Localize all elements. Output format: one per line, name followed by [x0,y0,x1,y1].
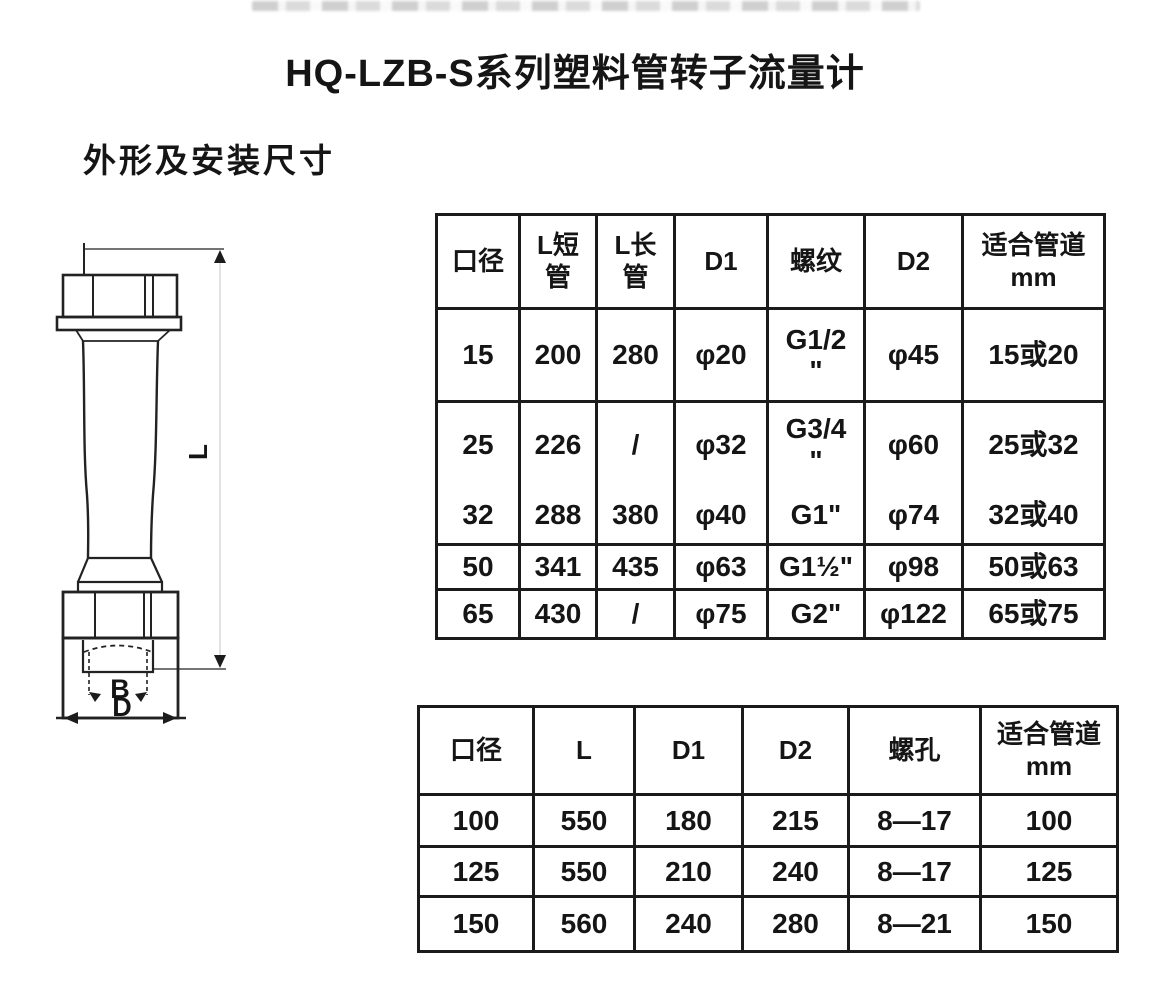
table1-cell: 25或32 [963,402,1105,487]
table1-cell: 226 [520,402,597,487]
table2-cell: 8—17 [849,795,981,847]
table-row: 65 430 / φ75 G2" φ122 65或75 [437,590,1105,639]
table1-cell: G1" [768,487,865,545]
table1-cell: 15或20 [963,309,1105,402]
table-row: 32 288 380 φ40 G1" φ74 32或40 [437,487,1105,545]
table1-header-cell: 适合管道 mm [963,215,1105,309]
table2-cell: 280 [743,897,849,952]
hidden-thread-arc [84,646,152,653]
top-flange [57,317,181,330]
table2-header-cell: D2 [743,707,849,795]
table1-cell: 25 [437,402,520,487]
table2-header-cell: L [534,707,635,795]
top-hex-nut [63,275,177,317]
table-row: 50 341 435 φ63 G1½" φ98 50或63 [437,545,1105,590]
table1-cell: 435 [597,545,675,590]
table1-header-cell: D2 [865,215,963,309]
flowmeter-outline-drawing: L B D [40,235,240,735]
table2-cell: 240 [635,897,743,952]
inner-socket [83,640,153,672]
table1-cell: 50或63 [963,545,1105,590]
table1-cell: 32 [437,487,520,545]
d-dim-arrow-right [163,712,177,724]
table1-cell: G2" [768,590,865,639]
table2-header-cell: D1 [635,707,743,795]
table2-cell: 215 [743,795,849,847]
dim-label-d: D [112,692,132,722]
table2-cell: 100 [419,795,534,847]
table1-cell: 288 [520,487,597,545]
table-row: 口径 L D1 D2 螺孔 适合管道 mm [419,707,1118,795]
bottom-hex-nut [63,592,178,638]
tube-left-edge [83,341,88,558]
collar [78,582,162,592]
table1-cell: 200 [520,309,597,402]
table1-header-cell: L长 管 [597,215,675,309]
table-row: 25 226 / φ32 G3/4 " φ60 25或32 [437,402,1105,487]
table2-cell: 125 [419,847,534,897]
table1-cell: φ63 [675,545,768,590]
table1-cell: φ45 [865,309,963,402]
table1-cell: 32或40 [963,487,1105,545]
table1-cell: / [597,402,675,487]
table1-cell: φ98 [865,545,963,590]
table1-cell: φ60 [865,402,963,487]
table2-cell: 8—17 [849,847,981,897]
table1-header-cell: L短 管 [520,215,597,309]
table2-cell: 560 [534,897,635,952]
table2-cell: 180 [635,795,743,847]
dim-label-l: L [183,444,213,460]
table2-header-cell: 适合管道 mm [981,707,1118,795]
table1-cell: G1/2 " [768,309,865,402]
table1-cell: φ122 [865,590,963,639]
table2-cell: 125 [981,847,1118,897]
table2-header-cell: 口径 [419,707,534,795]
table1-cell: 65或75 [963,590,1105,639]
table2-cell: 550 [534,795,635,847]
section-heading: 外形及安装尺寸 [83,134,335,182]
table1-cell: 430 [520,590,597,639]
table-row: 口径 L短 管 L长 管 D1 螺纹 D2 适合管道 mm [437,215,1105,309]
cropped-text-strip [252,1,920,11]
table2-cell: 240 [743,847,849,897]
page: HQ-LZB-S系列塑料管转子流量计 外形及安装尺寸 [0,0,1150,1008]
table1-cell: 380 [597,487,675,545]
dimensions-table-flanged: 口径 L D1 D2 螺孔 适合管道 mm 100 550 180 215 8—… [417,705,1119,953]
table2-cell: 550 [534,847,635,897]
table1-cell: φ32 [675,402,768,487]
table2-cell: 150 [419,897,534,952]
page-title: HQ-LZB-S系列塑料管转子流量计 [0,42,1150,97]
cone-transition [78,558,162,582]
table1-cell: G1½" [768,545,865,590]
table-row: 15 200 280 φ20 G1/2 " φ45 15或20 [437,309,1105,402]
table1-cell: φ40 [675,487,768,545]
table2-cell: 150 [981,897,1118,952]
dimensions-table-threaded: 口径 L短 管 L长 管 D1 螺纹 D2 适合管道 mm 15 200 280… [435,213,1106,640]
b-dim-arrow-right [135,692,147,702]
table1-cell: φ75 [675,590,768,639]
table1-cell: 15 [437,309,520,402]
tube-shoulder [76,330,170,341]
tube-right-edge [151,341,158,558]
table2-cell: 100 [981,795,1118,847]
table1-header-cell: 口径 [437,215,520,309]
table-row: 125 550 210 240 8—17 125 [419,847,1118,897]
l-dim-arrow-top [214,250,226,263]
table1-cell: 50 [437,545,520,590]
table1-header-cell: D1 [675,215,768,309]
d-dim-arrow-left [64,712,78,724]
table-row: 150 560 240 280 8—21 150 [419,897,1118,952]
l-dim-arrow-bottom [214,655,226,668]
table-row: 100 550 180 215 8—17 100 [419,795,1118,847]
table1-cell: G3/4 " [768,402,865,487]
b-dim-arrow-left [89,692,101,702]
table2-cell: 8—21 [849,897,981,952]
table2-cell: 210 [635,847,743,897]
table1-cell: 341 [520,545,597,590]
table1-cell: φ74 [865,487,963,545]
table1-header-cell: 螺纹 [768,215,865,309]
table2-header-cell: 螺孔 [849,707,981,795]
table1-cell: 65 [437,590,520,639]
table1-cell: / [597,590,675,639]
table1-cell: 280 [597,309,675,402]
table1-cell: φ20 [675,309,768,402]
